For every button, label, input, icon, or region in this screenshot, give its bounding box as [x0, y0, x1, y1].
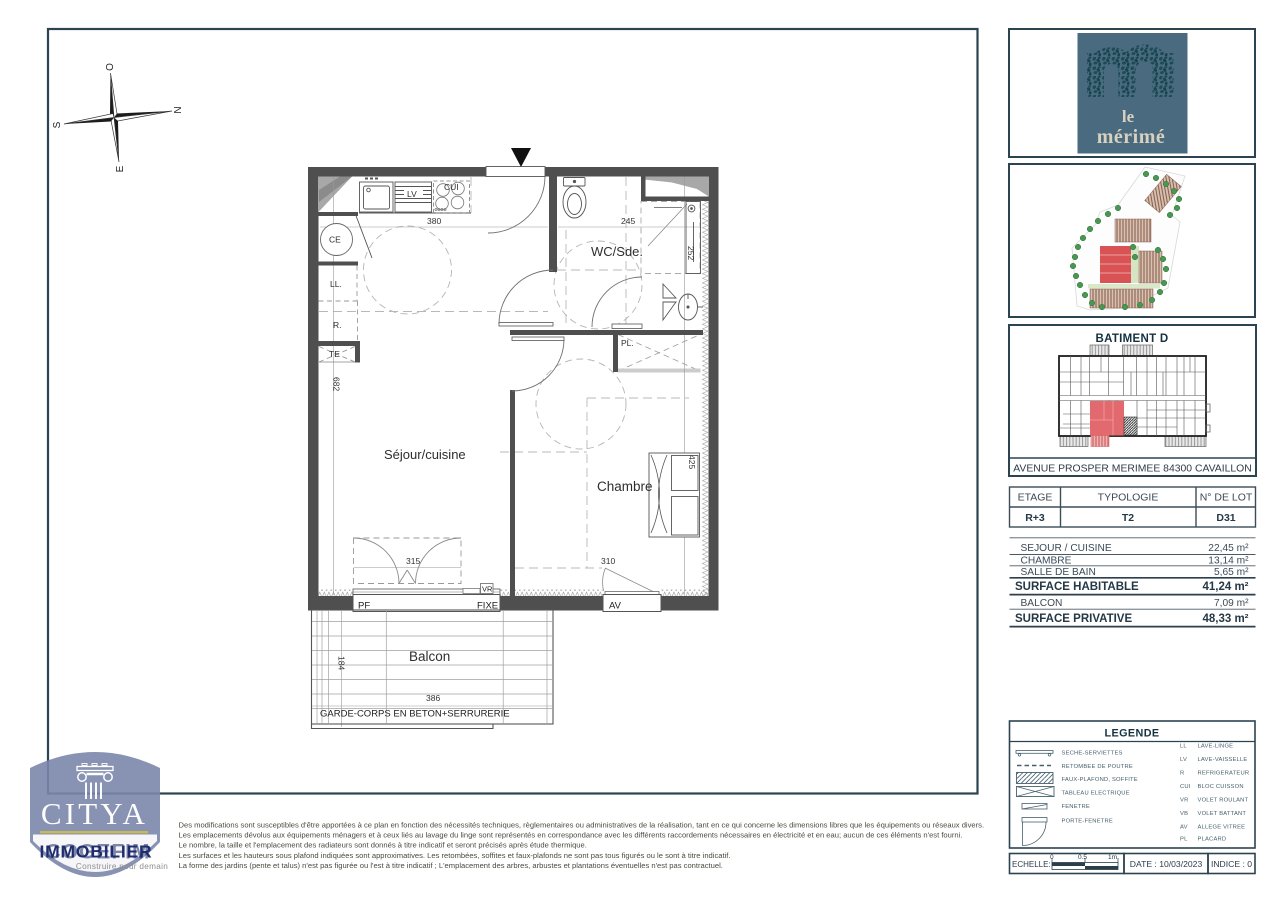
svg-text:0.5: 0.5	[1078, 854, 1087, 861]
svg-text:FAUX-PLAFOND, SOFFITE: FAUX-PLAFOND, SOFFITE	[1062, 777, 1138, 783]
svg-text:VB: VB	[1180, 811, 1188, 817]
svg-text:SEJOUR / CUISINE: SEJOUR / CUISINE	[1021, 543, 1112, 554]
svg-text:N: N	[173, 106, 184, 113]
svg-text:PL: PL	[1180, 837, 1188, 843]
svg-text:1m: 1m	[1108, 854, 1117, 861]
svg-text:LAVE-VAISSELLE: LAVE-VAISSELLE	[1198, 757, 1248, 763]
svg-text:BALCON: BALCON	[1021, 598, 1063, 609]
svg-text:PORTE-FENETRE: PORTE-FENETRE	[1062, 819, 1113, 825]
svg-text:SECHE-SERVIETTES: SECHE-SERVIETTES	[1062, 751, 1123, 757]
svg-text:mérimé: mérimé	[1097, 126, 1166, 148]
svg-text:22,45 m²: 22,45 m²	[1208, 543, 1249, 554]
svg-text:380: 380	[427, 216, 441, 226]
svg-text:315: 315	[406, 556, 420, 566]
svg-text:SALLE DE BAIN: SALLE DE BAIN	[1021, 567, 1096, 578]
svg-text:Le nombre, la taille et l'empl: Le nombre, la taille et l'emplacement de…	[179, 841, 587, 850]
svg-text:TE: TE	[329, 349, 340, 359]
svg-text:CE: CE	[329, 235, 341, 245]
svg-text:WC/Sde.: WC/Sde.	[591, 244, 643, 259]
svg-text:CHAMBRE: CHAMBRE	[1021, 555, 1072, 566]
svg-text:Construire pour demain: Construire pour demain	[76, 862, 168, 871]
svg-text:ALLEGE VITREE: ALLEGE VITREE	[1198, 825, 1246, 831]
svg-text:REFRIGERATEUR: REFRIGERATEUR	[1198, 771, 1250, 777]
svg-text:310: 310	[601, 556, 615, 566]
svg-text:48,33 m²: 48,33 m²	[1202, 613, 1248, 625]
svg-text:FENETRE: FENETRE	[1062, 804, 1090, 810]
svg-text:LV: LV	[1180, 757, 1187, 763]
svg-text:VR: VR	[482, 585, 493, 594]
svg-text:SURFACE PRIVATIVE: SURFACE PRIVATIVE	[1015, 613, 1132, 625]
svg-text:GARDE-CORPS EN BETON+SERRURERI: GARDE-CORPS EN BETON+SERRURERIE	[320, 709, 510, 720]
svg-text:le: le	[1122, 107, 1135, 126]
svg-text:INDICE : 0: INDICE : 0	[1211, 859, 1252, 869]
svg-text:AV: AV	[1180, 825, 1188, 831]
svg-text:425: 425	[687, 455, 697, 469]
svg-text:184: 184	[337, 656, 347, 670]
svg-text:682: 682	[332, 377, 342, 391]
svg-text:41,24 m²: 41,24 m²	[1202, 581, 1248, 593]
svg-text:Les emplacements dévolus aux é: Les emplacements dévolus aux équipements…	[179, 831, 963, 840]
svg-text:LL.: LL.	[330, 279, 342, 289]
svg-text:PLACARD: PLACARD	[1198, 837, 1227, 843]
svg-text:252: 252	[686, 246, 696, 260]
svg-text:TABLEAU ELECTRIQUE: TABLEAU ELECTRIQUE	[1062, 791, 1130, 797]
svg-text:Séjour/cuisine: Séjour/cuisine	[384, 447, 466, 462]
svg-text:LAVE-LINGE: LAVE-LINGE	[1198, 744, 1234, 750]
svg-text:Des modifications sont suscept: Des modifications sont susceptibles d'êt…	[179, 821, 985, 830]
svg-text:O: O	[105, 63, 116, 71]
svg-text:VOLET ROULANT: VOLET ROULANT	[1198, 798, 1249, 804]
svg-text:CUI: CUI	[444, 182, 459, 192]
svg-text:Les surfaces et les hauteurs s: Les surfaces et les hauteurs sous plafon…	[179, 851, 731, 860]
svg-text:AV: AV	[609, 601, 622, 612]
svg-text:VR: VR	[1180, 798, 1188, 804]
svg-text:VOLET BATTANT: VOLET BATTANT	[1198, 811, 1247, 817]
svg-text:13,14 m²: 13,14 m²	[1208, 555, 1249, 566]
svg-text:R+3: R+3	[1025, 512, 1045, 524]
svg-text:ECHELLE:: ECHELLE:	[1012, 860, 1051, 869]
svg-text:TYPOLOGIE: TYPOLOGIE	[1098, 492, 1159, 504]
svg-text:CITYA: CITYA	[41, 796, 148, 831]
svg-text:PL.: PL.	[621, 338, 634, 348]
svg-text:La forme des jardins (pente et: La forme des jardins (pente et talus) n'…	[179, 861, 723, 870]
svg-text:5,65 m²: 5,65 m²	[1214, 567, 1249, 578]
svg-text:LEGENDE: LEGENDE	[1105, 728, 1160, 740]
svg-text:R.: R.	[333, 320, 342, 330]
svg-text:Balcon: Balcon	[409, 649, 450, 664]
svg-text:COGEFIM: COGEFIM	[46, 841, 151, 864]
svg-text:RETOMBEE DE POUTRE: RETOMBEE DE POUTRE	[1062, 764, 1133, 770]
svg-text:DATE : 10/03/2023: DATE : 10/03/2023	[1130, 859, 1203, 869]
svg-text:7,09 m²: 7,09 m²	[1214, 598, 1249, 609]
svg-text:N° DE LOT: N° DE LOT	[1200, 492, 1253, 504]
svg-text:ETAGE: ETAGE	[1018, 492, 1053, 504]
svg-text:T2: T2	[1122, 512, 1134, 524]
svg-text:D31: D31	[1216, 512, 1235, 524]
svg-text:S: S	[52, 121, 63, 128]
svg-text:CUI: CUI	[1180, 784, 1191, 790]
svg-text:Chambre: Chambre	[597, 479, 653, 494]
svg-text:AVENUE PROSPER MERIMEE 84300 C: AVENUE PROSPER MERIMEE 84300 CAVAILLON	[1013, 464, 1252, 475]
svg-text:SURFACE HABITABLE: SURFACE HABITABLE	[1015, 581, 1139, 593]
svg-text:BATIMENT D: BATIMENT D	[1095, 333, 1168, 345]
svg-text:245: 245	[621, 216, 635, 226]
svg-text:BLOC CUISSON: BLOC CUISSON	[1198, 784, 1244, 790]
svg-text:LV: LV	[407, 189, 417, 199]
svg-text:R: R	[1180, 771, 1184, 777]
svg-text:386: 386	[426, 693, 440, 703]
svg-text:LL: LL	[1180, 744, 1187, 750]
svg-text:PF: PF	[358, 601, 370, 612]
svg-text:FIXE: FIXE	[477, 601, 498, 612]
svg-text:E: E	[115, 165, 126, 172]
